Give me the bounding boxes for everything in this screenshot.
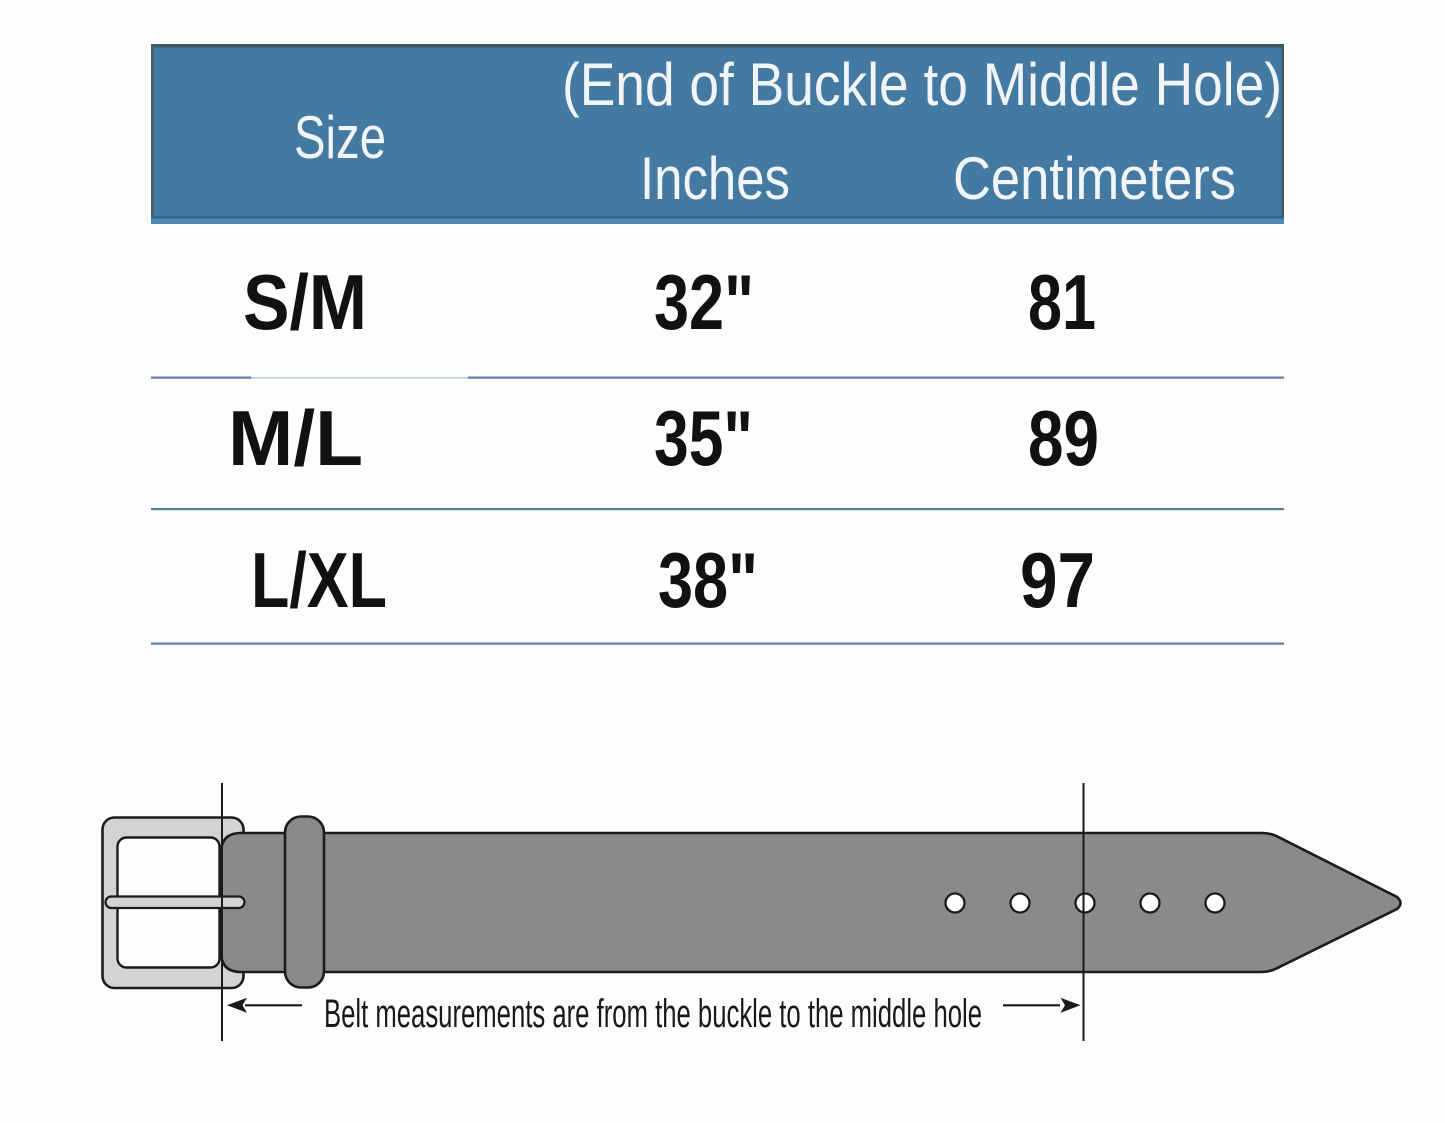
svg-text:M/L: M/L	[228, 394, 363, 482]
svg-text:38": 38"	[658, 536, 758, 624]
svg-text:Centimeters: Centimeters	[953, 145, 1236, 212]
svg-text:Inches: Inches	[640, 145, 790, 212]
svg-text:Size: Size	[294, 104, 386, 171]
svg-text:S/M: S/M	[243, 258, 367, 346]
svg-text:L/XL: L/XL	[251, 536, 387, 624]
svg-text:81: 81	[1028, 258, 1096, 346]
svg-text:97: 97	[1020, 536, 1095, 624]
svg-text:(End of Buckle to Middle Hole): (End of Buckle to Middle Hole)	[562, 51, 1282, 118]
svg-text:35": 35"	[654, 394, 753, 482]
svg-text:89: 89	[1028, 394, 1099, 482]
svg-text:32": 32"	[654, 258, 754, 346]
svg-text:Belt measurements are from the: Belt measurements are from the buckle to…	[324, 992, 982, 1036]
